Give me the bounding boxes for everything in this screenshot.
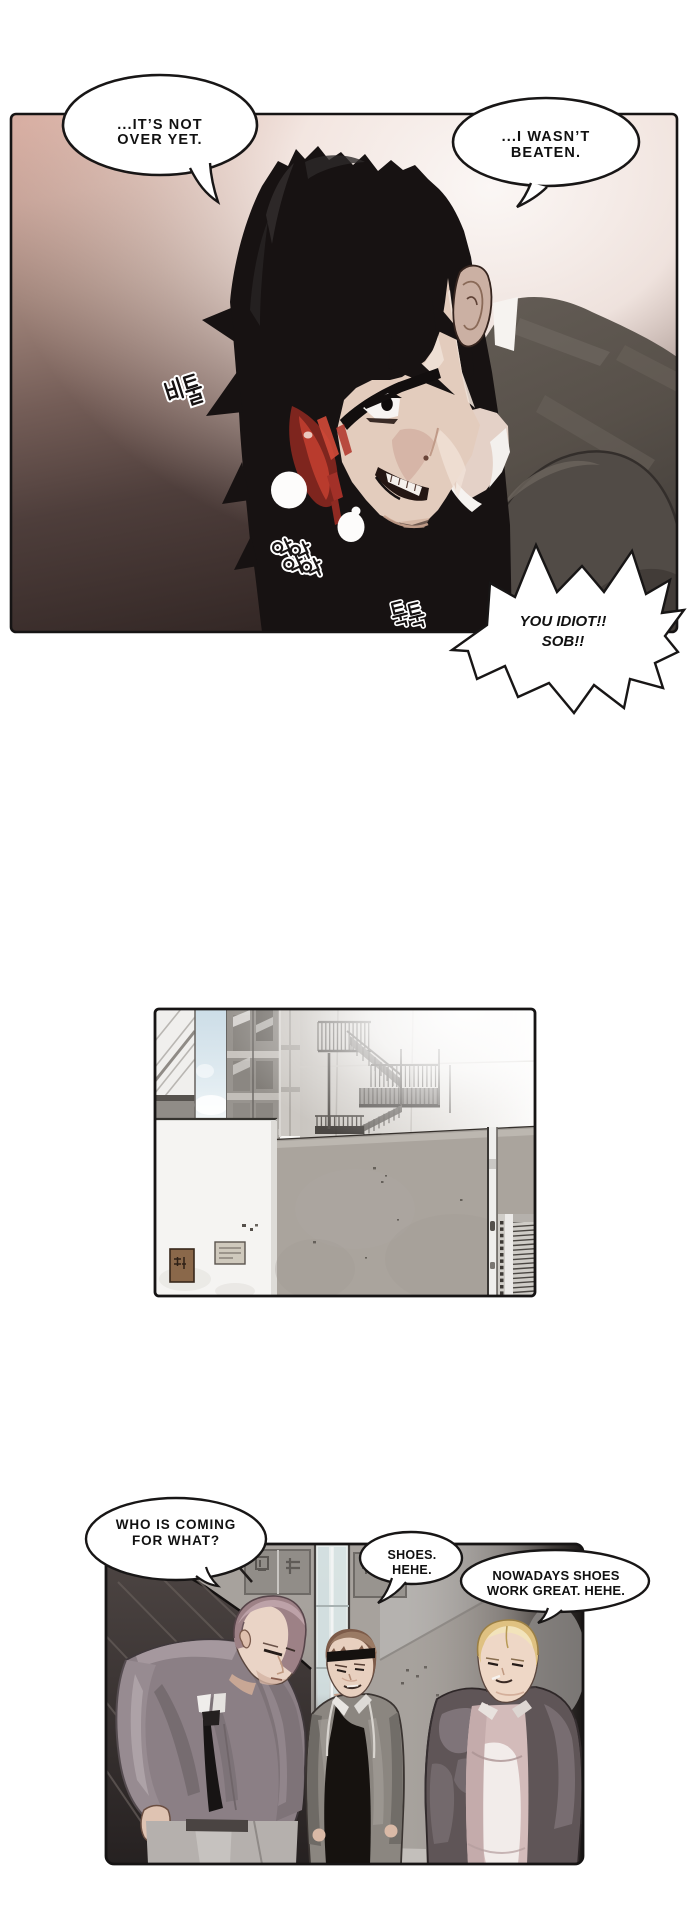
svg-text:NOWADAYS SHOES: NOWADAYS SHOES	[492, 1568, 619, 1583]
svg-text:...I WASN’T: ...I WASN’T	[502, 129, 591, 145]
svg-text:HEHE.: HEHE.	[392, 1563, 432, 1577]
svg-text:FOR WHAT?: FOR WHAT?	[132, 1533, 220, 1548]
svg-text:BEATEN.: BEATEN.	[511, 145, 581, 161]
svg-text:SOB!!: SOB!!	[542, 633, 585, 650]
svg-text:YOU IDIOT!!: YOU IDIOT!!	[520, 613, 607, 630]
svg-text:OVER YET.: OVER YET.	[117, 132, 202, 148]
svg-text:WORK GREAT. HEHE.: WORK GREAT. HEHE.	[487, 1583, 625, 1598]
svg-text:...IT’S NOT: ...IT’S NOT	[117, 117, 202, 133]
svg-text:SHOES.: SHOES.	[387, 1548, 436, 1562]
svg-text:WHO IS COMING: WHO IS COMING	[116, 1517, 236, 1532]
